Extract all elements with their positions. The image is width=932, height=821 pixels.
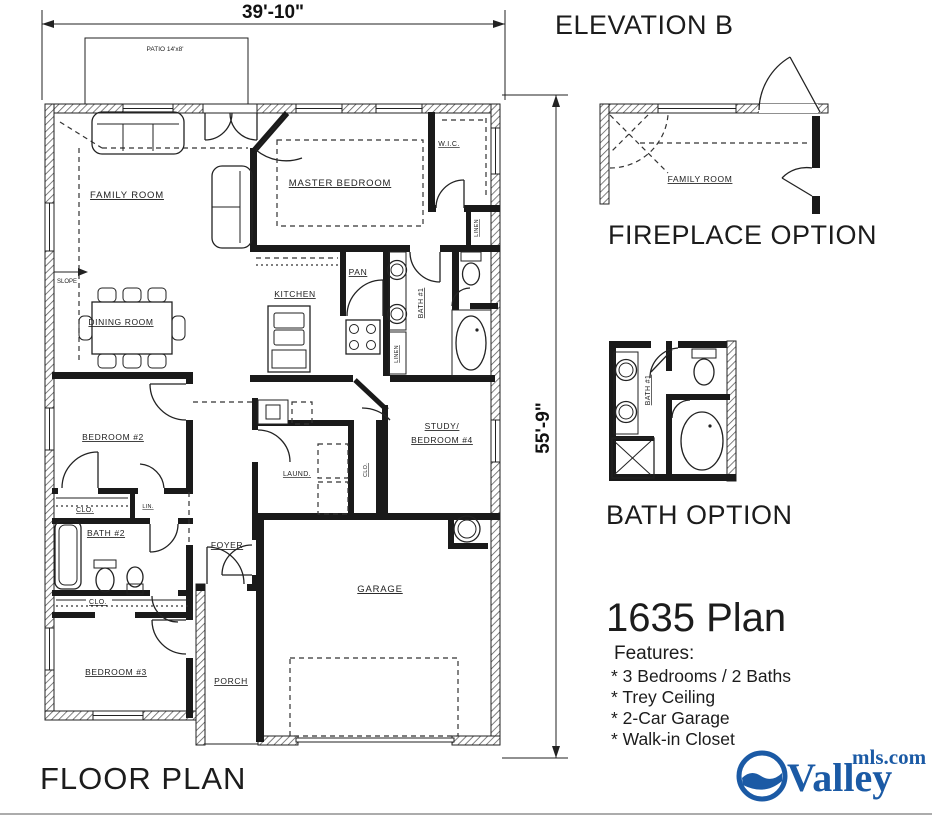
hall-niche [258,400,288,424]
dashed-lines [56,118,486,736]
family-room-label: FAMILY ROOM [90,190,164,201]
right-dimension: 55'-9" [502,95,568,758]
master-bath-fixtures [388,252,492,376]
height-dimension-label: 55'-9" [533,402,554,454]
closet-bedroom2-label: CLO. [76,507,94,514]
porch-label: PORCH [214,676,248,686]
linen-hall-label: LINEN [394,345,400,363]
feature-bedrooms-baths: * 3 Bedrooms / 2 Baths [611,666,791,687]
closet-hall-label: CLO. [89,599,107,606]
patio-double-door [203,104,257,140]
kitchen-island [268,306,310,372]
top-dimension: 39'-10" [42,2,505,100]
bath2-label: BATH #2 [87,528,125,538]
valley-mls-logo: Valley mls.com [735,748,932,806]
pantry-label: PAN [349,267,368,277]
bottom-divider [0,813,932,815]
bedroom2-label: BEDROOM #2 [82,432,144,442]
family-room-loveseat [212,166,252,248]
floor-plan-title: FLOOR PLAN [40,761,246,797]
feature-walk-in-closet: * Walk-in Closet [611,729,735,750]
patio-label: PATIO 14'x8' [147,46,184,53]
feature-garage: * 2-Car Garage [611,708,730,729]
width-dimension-label: 39'-10" [242,2,304,23]
study-label-line1: STUDY/ [425,421,460,431]
feature-trey-ceiling: * Trey Ceiling [611,687,715,708]
stove [346,320,380,354]
garage-label: GARAGE [357,584,402,595]
mls-com-text: mls.com [852,745,926,770]
bath-option-room-label: BATH #1 [645,375,652,406]
master-bedroom-label: MASTER BEDROOM [289,178,392,189]
bath1-label: BATH #1 [418,288,425,319]
bath-option-title: BATH OPTION [606,500,793,531]
fireplace-option-diagram: FAMILY ROOM [600,57,828,214]
water-heater [454,516,480,542]
elevation-title: ELEVATION B [555,10,734,41]
linen-master-label: LINEN [474,219,480,237]
slope-label: SLOPE [57,279,77,285]
kitchen-label: KITCHEN [274,289,316,299]
laundry-label: LAUND. [283,471,311,478]
fireplace-option-title: FIREPLACE OPTION [608,220,877,251]
wic-label: W.I.C. [438,141,459,148]
valley-logo-globe-icon [735,748,789,804]
dining-table-and-chairs [79,288,185,368]
bedroom3-label: BEDROOM #3 [85,667,147,677]
linen-small-label: LIN. [142,504,153,510]
features-heading: Features: [614,643,694,665]
closet-study-label: CLO. [363,463,369,477]
foyer-label: FOYER [211,540,243,550]
dining-room-label: DINING ROOM [88,317,153,327]
slope-arrow: SLOPE [54,268,88,285]
bath-option-diagram: BATH #1 [609,341,736,481]
patio: PATIO 14'x8' [85,38,248,105]
fireplace-family-room-label: FAMILY ROOM [668,174,733,184]
study-label-line2: BEDROOM #4 [411,435,473,445]
floor-plan-drawing: 39'-10" 55'-9" PATIO 14'x8' [0,0,932,821]
plan-name: 1635 Plan [606,596,786,641]
